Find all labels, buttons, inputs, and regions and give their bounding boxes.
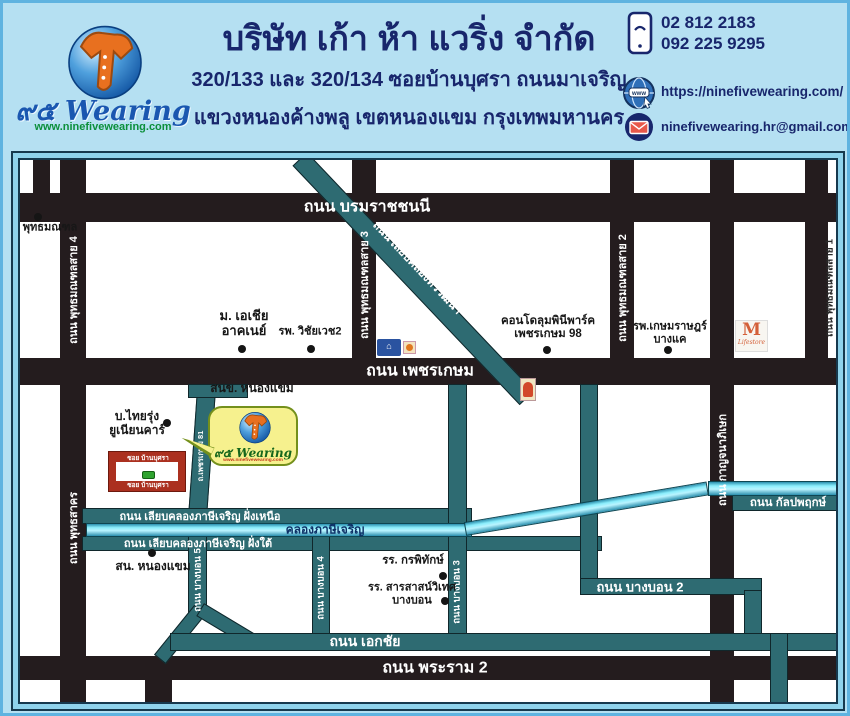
label-road-phetkasem: ถนน เพชรเกษม	[366, 359, 474, 384]
place-nongkhaem-district-office: สนข. หนองแขม	[210, 382, 293, 396]
road-ekachai	[170, 633, 838, 651]
label-road-kanchana: ถนน กาญจนาภิเษก	[713, 414, 731, 506]
email-icon	[623, 111, 655, 143]
company-title: บริษัท เก้า ห้า แวริ่ง จำกัด	[189, 11, 629, 65]
dot-asia-university	[238, 345, 246, 353]
dot-nongkhaem-police	[148, 549, 156, 557]
label-road-liapnuea: ถนน เลียบคลองภาษีเจริญ ฝั่งเหนือ	[120, 507, 281, 525]
dot-lumpini-condo	[543, 346, 551, 354]
label-road-sai2: ถนน พุทธมณฑลสาย 2	[613, 234, 631, 342]
place-kasemrad-hospital: รพ.เกษมราษฎร์ บางแค	[633, 320, 707, 345]
label-road-bangbon4: ถนน บางบอน 4	[314, 556, 329, 620]
svg-text:www: www	[631, 91, 646, 97]
label-road-sai4: ถนน พุทธมณฑลสาย 4	[64, 236, 82, 344]
label-road-phutthasakhon: ถนน พุทธสาคร	[64, 492, 82, 564]
company-map-poster: ๙๕ Wearing www.ninefivewearing.com บริษั…	[0, 0, 850, 716]
dot-phutthamonthon	[34, 213, 42, 221]
place-wichaiwej-hospital: รพ. วิชัยเวช2	[279, 326, 342, 339]
website-globe-icon: www	[621, 75, 657, 111]
soi-label-top: ซอย บ้านบุศรา	[109, 453, 187, 463]
label-road-phet81: ถ.เพชรเกษม 81	[195, 431, 207, 482]
place-thairung-unioncar: บ.ไทยรุ่ง ยูเนียนคาร์	[109, 410, 165, 438]
place-phutthamonthon: พุทธมณฑล	[23, 222, 78, 235]
label-canal: คลองภาษีเจริญ	[286, 521, 365, 540]
phone-number-1: 02 812 2183	[661, 13, 756, 33]
place-asia-university: ม. เอเชีย อาคเนย์	[220, 309, 269, 339]
store-logo-orange-icon	[403, 341, 416, 354]
label-road-sai1: ถนน พุทธมณฑลสาย 1	[823, 239, 838, 337]
email-address: ninefivewearing.hr@gmail.com	[661, 119, 850, 134]
company-location-marker	[142, 471, 155, 479]
brand-url: www.ninefivewearing.com	[5, 121, 201, 133]
label-road-borom: ถนน บรมราชชนนี	[304, 195, 430, 220]
label-road-bangbon5: ถนน บางบอน 5	[191, 548, 206, 612]
m-lifestore-logo-icon: M Lifestore	[735, 320, 768, 352]
label-road-sai3: ถนน พุทธมณฑลสาย 3	[355, 231, 373, 339]
road-right-south	[770, 633, 788, 704]
label-road-liapthawi: ถนน เลียบคลองทวีวัฒนา	[368, 217, 466, 319]
label-road-rama2: ถนน พระราม 2	[382, 656, 487, 681]
store-logo-blue-icon: ⌂	[377, 339, 401, 356]
place-nongkhaem-police: สน. หนองแขม	[115, 560, 190, 574]
place-lumpini-condo: คอนโดลุมพินีพาร์ค เพชรเกษม 98	[501, 315, 595, 341]
address-line-1: 320/133 และ 320/134 ซอยบ้านบุศรา ถนนมาเจ…	[189, 63, 629, 95]
shrine-icon	[520, 378, 536, 401]
dot-kornpitack-school	[439, 572, 447, 580]
callout-url: www.ninefivewearing.com	[210, 458, 296, 463]
label-road-bangbon2: ถนน บางบอน 2	[597, 577, 684, 598]
soi-bannbusara-loop: ซอย บ้านบุศรา ซอย บ้านบุศรา	[108, 451, 186, 492]
header: ๙๕ Wearing www.ninefivewearing.com บริษั…	[3, 3, 850, 151]
soi-label-bottom: ซอย บ้านบุศรา	[109, 480, 187, 490]
road-stub-bottom-left	[145, 660, 172, 704]
phone-number-2: 092 225 9295	[661, 34, 765, 54]
dot-thairung-unioncar	[163, 419, 171, 427]
company-callout: ๙๕ Wearing www.ninefivewearing.com	[208, 406, 298, 466]
phone-icon	[627, 11, 653, 55]
dot-kasemrad-hospital	[664, 346, 672, 354]
address-line-2: แขวงหนองค้างพลู เขตหนองแขม กรุงเทพมหานคร	[189, 101, 629, 133]
label-road-kanlapaphruek: ถนน กัลปพฤกษ์	[750, 494, 826, 512]
website-url: https://ninefivewearing.com/	[661, 84, 843, 99]
place-kornpitack-school: รร. กรพิทักษ์	[382, 554, 444, 567]
map: ถนน บรมราชชนนี ถนน เพชรเกษม ถนน พระราม 2…	[18, 158, 838, 704]
road-bangbon2-north	[580, 384, 598, 594]
callout-logo-icon	[238, 410, 272, 444]
map-frame: ถนน บรมราชชนนี ถนน เพชรเกษม ถนน พระราม 2…	[11, 151, 845, 711]
dot-sarasas-school	[441, 597, 449, 605]
dot-wichaiwej-hospital	[307, 345, 315, 353]
label-road-ekachai: ถนน เอกชัย	[330, 631, 401, 653]
